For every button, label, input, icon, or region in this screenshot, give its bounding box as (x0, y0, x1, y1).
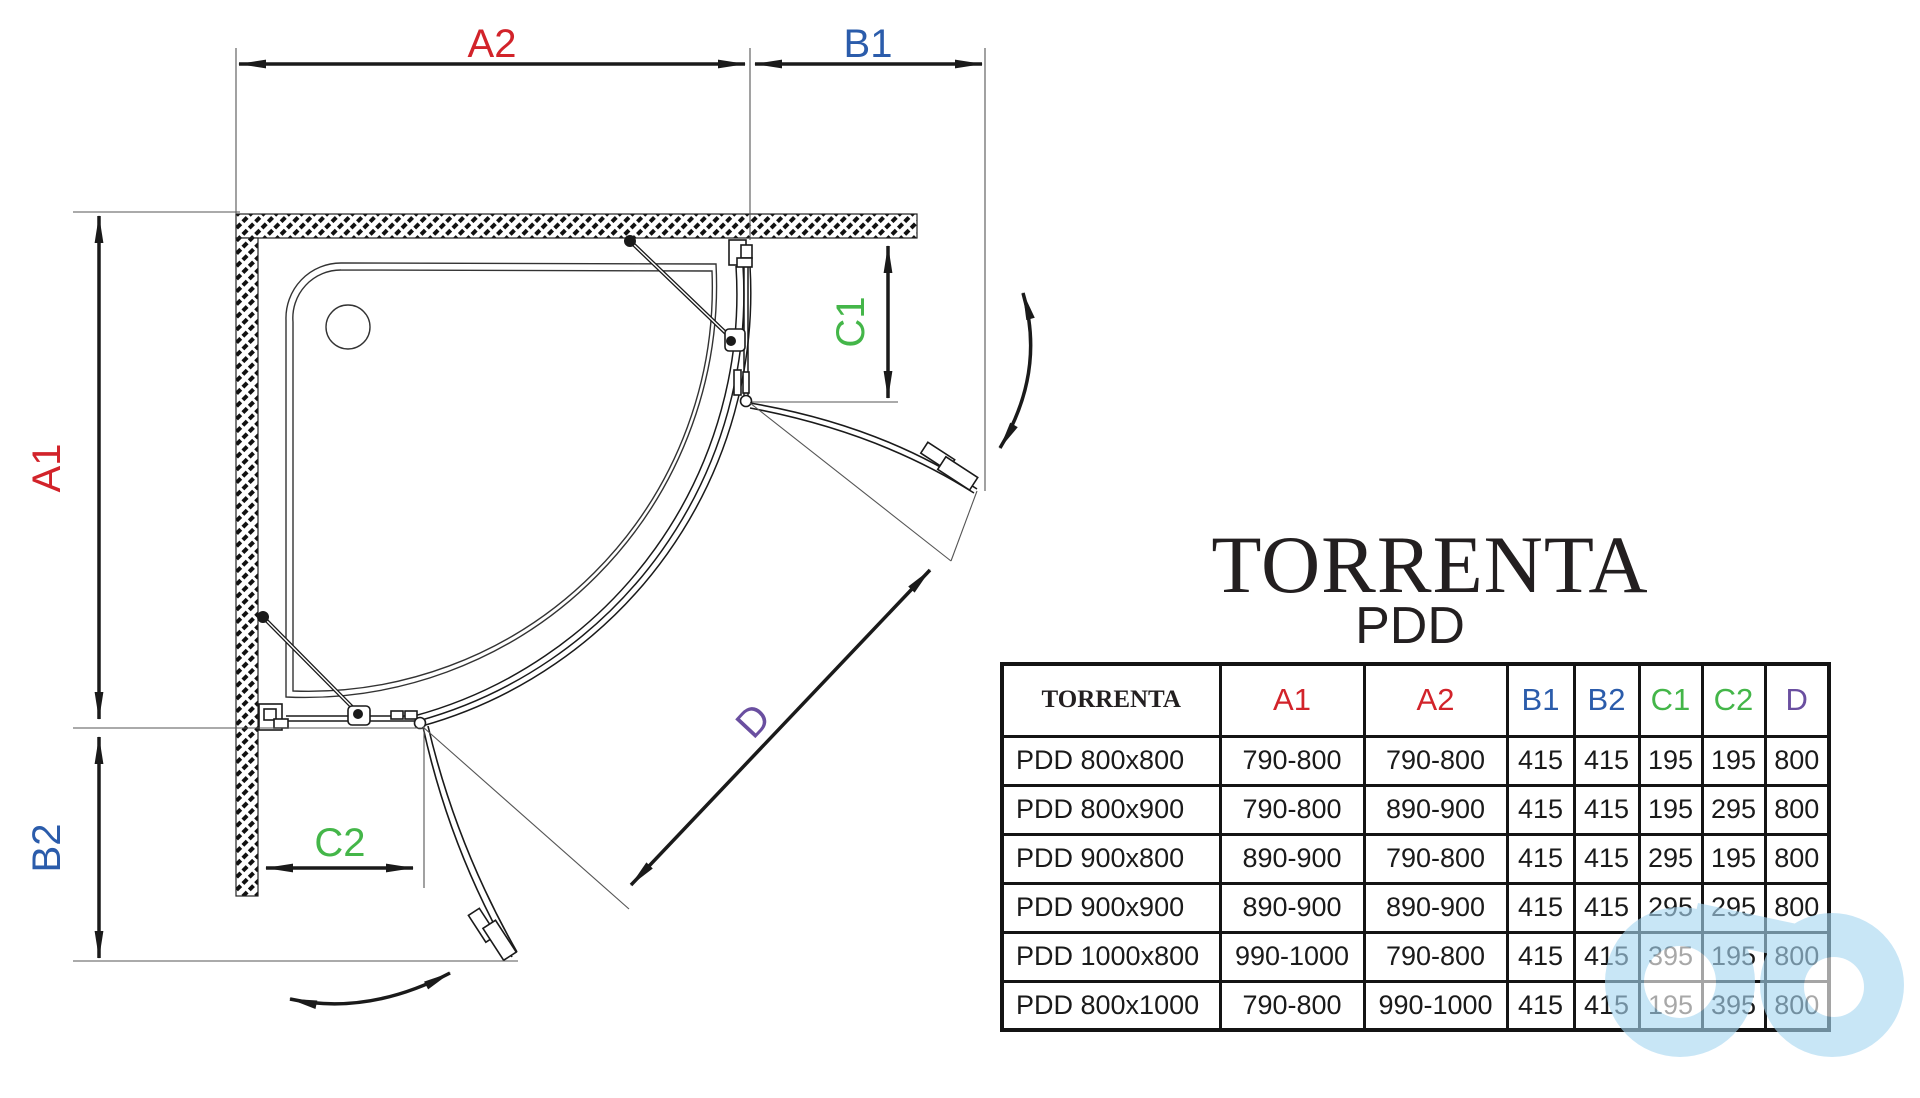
curved-glass-panels (414, 266, 751, 726)
value-cell: 790-800 (1220, 981, 1364, 1030)
door-handle-bottom (468, 908, 516, 960)
value-cell: 890-900 (1364, 785, 1507, 834)
value-cell: 415 (1507, 932, 1574, 981)
value-cell: 800 (1765, 932, 1829, 981)
table-header-d: D (1765, 664, 1829, 736)
drain-circle (326, 305, 370, 349)
value-cell: 415 (1574, 883, 1639, 932)
dimension-lines (99, 64, 982, 958)
value-cell: 415 (1574, 785, 1639, 834)
model-cell: PDD 800x800 (1002, 736, 1220, 785)
value-cell: 415 (1574, 932, 1639, 981)
value-cell: 415 (1574, 834, 1639, 883)
value-cell: 800 (1765, 785, 1829, 834)
table-row: PDD 900x900890-900890-900415415295295800 (1002, 883, 1829, 932)
value-cell: 800 (1765, 883, 1829, 932)
value-cell: 990-1000 (1220, 932, 1364, 981)
top-wall-profile (729, 240, 752, 267)
dim-label-b1: B1 (844, 22, 893, 66)
value-cell: 790-800 (1364, 736, 1507, 785)
value-cell: 990-1000 (1364, 981, 1507, 1030)
table-row: PDD 1000x800990-1000790-8004154153951958… (1002, 932, 1829, 981)
value-cell: 800 (1765, 736, 1829, 785)
table-row: PDD 900x800890-900790-800415415295195800 (1002, 834, 1829, 883)
value-cell: 415 (1507, 785, 1574, 834)
value-cell: 195 (1702, 834, 1765, 883)
model-cell: PDD 1000x800 (1002, 932, 1220, 981)
dim-label-a2: A2 (468, 22, 517, 66)
value-cell: 195 (1702, 932, 1765, 981)
model-cell: PDD 800x900 (1002, 785, 1220, 834)
value-cell: 890-900 (1220, 834, 1364, 883)
table-header-torrenta: TORRENTA (1002, 664, 1220, 736)
value-cell: 195 (1639, 736, 1702, 785)
table-row: PDD 800x1000790-800990-10004154151953958… (1002, 981, 1829, 1030)
door-swing-arcs (290, 293, 1031, 1004)
model-cell: PDD 900x800 (1002, 834, 1220, 883)
value-cell: 790-800 (1364, 834, 1507, 883)
dim-label-b2: B2 (25, 824, 69, 873)
value-cell: 790-800 (1364, 932, 1507, 981)
table-header-c2: C2 (1702, 664, 1765, 736)
door-hinges (391, 370, 752, 729)
value-cell: 295 (1639, 834, 1702, 883)
table-header-a1: A1 (1220, 664, 1364, 736)
bottom-wall-profile (259, 704, 288, 730)
table-header-b2: B2 (1574, 664, 1639, 736)
table-header-b1: B1 (1507, 664, 1574, 736)
dim-label-c2: C2 (314, 821, 365, 865)
dimensions-table: TORRENTAA1A2B1B2C1C2DPDD 800x800790-8007… (1000, 662, 1831, 1032)
extension-lines (73, 48, 985, 961)
wall-hatching (236, 214, 917, 896)
value-cell: 890-900 (1364, 883, 1507, 932)
support-struts (258, 236, 746, 726)
value-cell: 415 (1507, 834, 1574, 883)
value-cell: 295 (1702, 883, 1765, 932)
model-cell: PDD 900x900 (1002, 883, 1220, 932)
product-model-title: PDD (1170, 600, 1650, 652)
product-brand-title: TORRENTA (1170, 524, 1690, 606)
value-cell: 195 (1639, 981, 1702, 1030)
value-cell: 295 (1639, 883, 1702, 932)
table-row: PDD 800x900790-800890-900415415195295800 (1002, 785, 1829, 834)
model-cell: PDD 800x1000 (1002, 981, 1220, 1030)
value-cell: 395 (1702, 981, 1765, 1030)
open-door-bottom (423, 726, 517, 960)
value-cell: 415 (1574, 981, 1639, 1030)
value-cell: 195 (1702, 736, 1765, 785)
value-cell: 295 (1702, 785, 1765, 834)
door-handle-top (921, 442, 978, 490)
value-cell: 790-800 (1220, 736, 1364, 785)
value-cell: 415 (1507, 981, 1574, 1030)
table-header-a2: A2 (1364, 664, 1507, 736)
value-cell: 415 (1574, 736, 1639, 785)
shower-tray (286, 263, 717, 697)
table-row: PDD 800x800790-800790-800415415195195800 (1002, 736, 1829, 785)
value-cell: 890-900 (1220, 883, 1364, 932)
value-cell: 790-800 (1220, 785, 1364, 834)
value-cell: 800 (1765, 981, 1829, 1030)
value-cell: 800 (1765, 834, 1829, 883)
dim-d (631, 570, 930, 885)
value-cell: 415 (1507, 736, 1574, 785)
table-header-c1: C1 (1639, 664, 1702, 736)
dim-label-c1: C1 (829, 296, 873, 347)
dim-label-a1: A1 (25, 444, 69, 493)
open-door-top (750, 403, 978, 493)
value-cell: 195 (1639, 785, 1702, 834)
page: A2 B1 A1 B2 C1 C2 D TORRENTA PDD TORRENT… (0, 0, 1920, 1098)
value-cell: 415 (1507, 883, 1574, 932)
value-cell: 395 (1639, 932, 1702, 981)
fixed-rails (286, 264, 748, 721)
